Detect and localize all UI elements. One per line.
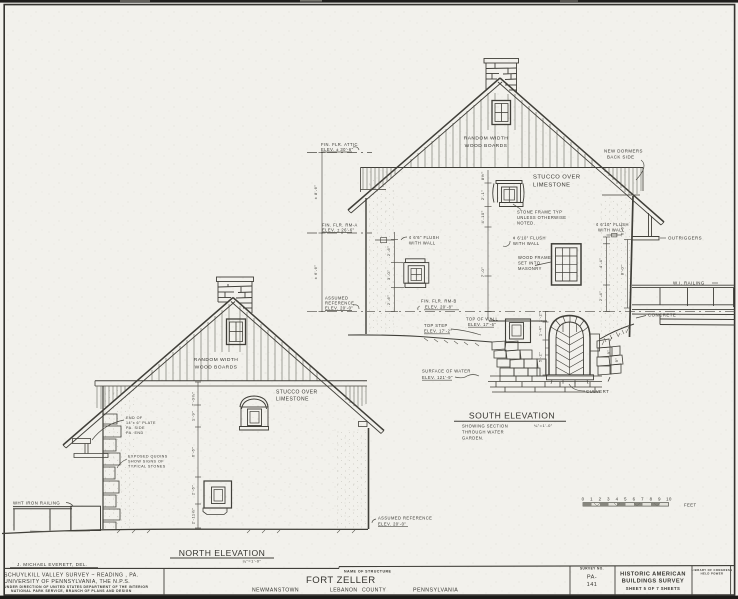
svg-text:4'-4": 4'-4" xyxy=(598,258,603,268)
svg-text:WHT IRON RAILING: WHT IRON RAILING xyxy=(13,500,60,505)
svg-text:ELEV. 17'-2": ELEV. 17'-2" xyxy=(424,329,452,334)
svg-text:¢ 6'10" FLUSH: ¢ 6'10" FLUSH xyxy=(596,222,629,227)
svg-text:9": 9" xyxy=(606,350,611,355)
svg-text:5: 5 xyxy=(624,497,627,502)
svg-text:SURFACE OF WATER: SURFACE OF WATER xyxy=(422,369,471,374)
svg-text:7'-0": 7'-0" xyxy=(480,267,485,277)
svg-text:NATIONAL PARK SERVICE, BRANCH: NATIONAL PARK SERVICE, BRANCH OF PLANS A… xyxy=(11,589,132,593)
svg-text:6'-6": 6'-6" xyxy=(191,447,196,457)
svg-text:7: 7 xyxy=(641,497,644,502)
svg-text:FEET: FEET xyxy=(684,503,697,508)
svg-text:GARDEN.: GARDEN. xyxy=(462,436,484,441)
svg-text:¢ 6'6" FLUSH: ¢ 6'6" FLUSH xyxy=(409,235,439,240)
svg-text:EXPOSED QUOINS: EXPOSED QUOINS xyxy=(128,455,168,459)
svg-text:1'-9": 1'-9" xyxy=(191,411,196,421)
svg-text:TOP STEP: TOP STEP xyxy=(424,323,448,328)
svg-text:FIN. FLR. RM-B: FIN. FLR. RM-B xyxy=(421,299,457,304)
svg-text:HELD POWER: HELD POWER xyxy=(701,572,724,576)
svg-text:6: 6 xyxy=(633,497,636,502)
svg-text:COUNTY: COUNTY xyxy=(362,588,386,594)
svg-text:2'-6": 2'-6" xyxy=(191,485,196,495)
svg-text:8: 8 xyxy=(650,497,653,502)
svg-text:NEWMANSTOWN: NEWMANSTOWN xyxy=(252,588,299,594)
svg-text:BUILDINGS SURVEY: BUILDINGS SURVEY xyxy=(622,578,684,584)
svg-text:8½": 8½" xyxy=(480,172,485,180)
svg-text:ASSUMED REFERENCE: ASSUMED REFERENCE xyxy=(378,516,432,521)
svg-text:ELEV. 20'-0": ELEV. 20'-0" xyxy=(378,522,406,527)
svg-text:PA. SIDE: PA. SIDE xyxy=(126,426,145,430)
svg-text:¢ 6'10" FLUSH: ¢ 6'10" FLUSH xyxy=(513,236,546,241)
svg-text:2: 2 xyxy=(599,497,602,502)
svg-text:PA-: PA- xyxy=(587,575,597,581)
svg-text:FORT ZELLER: FORT ZELLER xyxy=(306,575,376,586)
svg-text:± 8'-6": ± 8'-6" xyxy=(313,185,318,200)
svg-text:2'-6": 2'-6" xyxy=(386,295,391,305)
svg-text:TOP OF WALL: TOP OF WALL xyxy=(466,317,498,322)
svg-text:STONE FRAME TYP: STONE FRAME TYP xyxy=(517,210,562,215)
svg-text:± 6'-6": ± 6'-6" xyxy=(313,265,318,280)
svg-text:2'-11½": 2'-11½" xyxy=(191,508,196,525)
svg-text:1'-2": 1'-2" xyxy=(538,312,543,322)
svg-text:NEW DORMERS: NEW DORMERS xyxy=(604,149,643,154)
svg-text:9": 9" xyxy=(614,358,619,363)
svg-text:BACK SIDE: BACK SIDE xyxy=(607,155,634,160)
svg-text:CULVERT: CULVERT xyxy=(586,389,609,394)
svg-text:4'-10": 4'-10" xyxy=(480,210,485,223)
svg-text:SHOW SIGNS OF: SHOW SIGNS OF xyxy=(128,460,164,464)
svg-text:UNLESS OTHERWISE: UNLESS OTHERWISE xyxy=(517,215,566,220)
svg-text:WOOD BOARDS: WOOD BOARDS xyxy=(465,143,508,149)
svg-text:14"x 6" PLATE: 14"x 6" PLATE xyxy=(126,421,156,425)
svg-text:TYPICAL STONES: TYPICAL STONES xyxy=(128,465,166,469)
svg-text:SHEET 5 OF 7 SHEETS: SHEET 5 OF 7 SHEETS xyxy=(626,586,680,591)
svg-text:141: 141 xyxy=(587,582,598,588)
svg-text:4: 4 xyxy=(616,497,619,502)
svg-text:J. MICHAEL EVERETT, DEL.: J. MICHAEL EVERETT, DEL. xyxy=(17,562,88,567)
svg-text:WITH WALL: WITH WALL xyxy=(513,241,540,246)
svg-text:NOTED.: NOTED. xyxy=(517,221,535,226)
svg-text:STUCCO OVER: STUCCO OVER xyxy=(276,390,318,396)
svg-text:CONCRETE: CONCRETE xyxy=(648,313,676,318)
svg-text:SURVEY NO.: SURVEY NO. xyxy=(580,566,604,570)
svg-text:MASONRY: MASONRY xyxy=(518,266,542,271)
svg-text:2'-4": 2'-4" xyxy=(598,291,603,301)
svg-text:THROUGH WATER: THROUGH WATER xyxy=(462,430,504,435)
svg-text:W.I. RAILING: W.I. RAILING xyxy=(673,281,705,286)
svg-text:8'-0": 8'-0" xyxy=(620,265,625,275)
svg-text:LEBANON: LEBANON xyxy=(330,588,358,594)
svg-text:3: 3 xyxy=(607,497,610,502)
svg-text:2'-1": 2'-1" xyxy=(480,190,485,200)
svg-text:2'-6": 2'-6" xyxy=(386,246,391,256)
svg-text:WOOD BOARDS: WOOD BOARDS xyxy=(195,365,238,371)
svg-text:ELEV. ± 26'-6": ELEV. ± 26'-6" xyxy=(322,228,355,233)
svg-text:WOOD FRAME: WOOD FRAME xyxy=(518,255,551,260)
svg-text:HISTORIC AMERICAN: HISTORIC AMERICAN xyxy=(620,571,686,577)
svg-text:SHOWING SECTION: SHOWING SECTION xyxy=(462,424,508,429)
svg-text:SCHUYLKILL VALLEY SURVEY ~ REA: SCHUYLKILL VALLEY SURVEY ~ READING , PA. xyxy=(4,573,139,579)
svg-text:LIBRARY OF CONGRESS: LIBRARY OF CONGRESS xyxy=(692,568,733,572)
svg-text:ELEV. 17'-6": ELEV. 17'-6" xyxy=(468,322,496,327)
svg-text:WITH WALL: WITH WALL xyxy=(598,228,625,233)
svg-text:WITH WALL: WITH WALL xyxy=(409,241,436,246)
svg-text:0: 0 xyxy=(582,497,585,502)
svg-text:¼"=1'-0": ¼"=1'-0" xyxy=(534,423,553,428)
svg-text:OUTRIGGERS: OUTRIGGERS xyxy=(668,236,702,241)
svg-text:¼"=1'-0": ¼"=1'-0" xyxy=(243,559,262,564)
svg-text:NAME OF STRUCTURE: NAME OF STRUCTURE xyxy=(344,570,392,574)
svg-text:PENNSYLVANIA: PENNSYLVANIA xyxy=(413,588,458,594)
svg-text:9: 9 xyxy=(658,497,661,502)
svg-text:ELEV. 20'-0": ELEV. 20'-0" xyxy=(325,306,353,311)
svg-text:10: 10 xyxy=(666,497,672,502)
svg-text:NORTH ELEVATION: NORTH ELEVATION xyxy=(179,548,266,558)
svg-text:ELEV. ± 30'-6": ELEV. ± 30'-6" xyxy=(321,147,354,152)
svg-text:1'-4": 1'-4" xyxy=(538,326,543,336)
svg-text:LIMESTONE: LIMESTONE xyxy=(276,397,309,403)
svg-text:2'-0¾": 2'-0¾" xyxy=(191,392,196,406)
svg-text:ELEV. 121'-9": ELEV. 121'-9" xyxy=(422,375,453,380)
svg-text:LIMESTONE: LIMESTONE xyxy=(533,183,570,189)
svg-text:STUCCO OVER: STUCCO OVER xyxy=(533,175,580,181)
svg-text:ELEV. 20'-8": ELEV. 20'-8" xyxy=(425,305,453,310)
svg-text:END OF: END OF xyxy=(126,416,143,420)
svg-text:RANDOM WIDTH: RANDOM WIDTH xyxy=(464,136,509,142)
svg-text:5'-2": 5'-2" xyxy=(538,352,543,362)
svg-text:PA. END: PA. END xyxy=(126,431,144,435)
svg-text:RANDOM WIDTH: RANDOM WIDTH xyxy=(194,357,239,363)
svg-text:3'-0": 3'-0" xyxy=(386,270,391,280)
svg-text:1: 1 xyxy=(590,497,593,502)
svg-text:SOUTH ELEVATION: SOUTH ELEVATION xyxy=(469,411,555,421)
